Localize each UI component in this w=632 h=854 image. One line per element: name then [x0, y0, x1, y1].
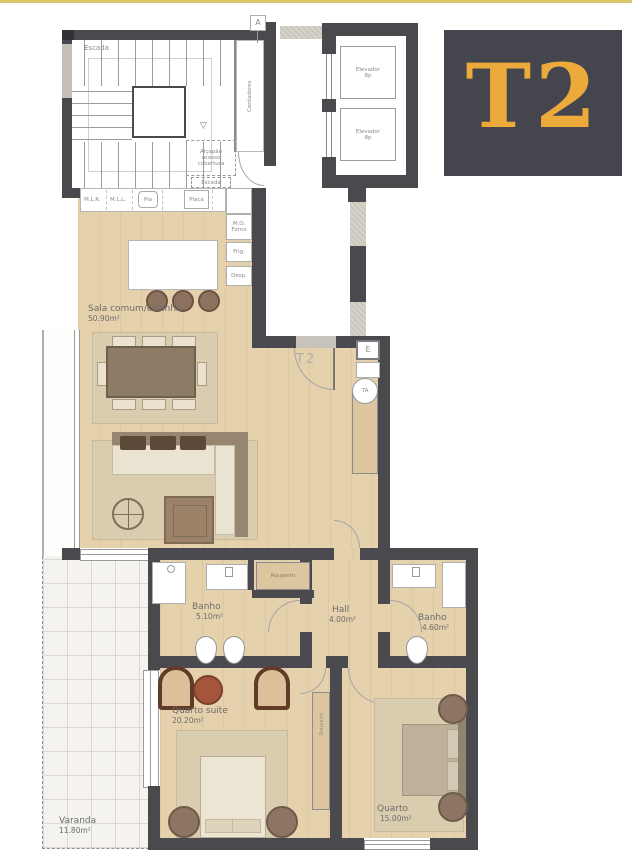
wall: [322, 175, 418, 188]
nightstand: [266, 806, 298, 838]
wall: [350, 246, 366, 302]
top-accent-line: [0, 0, 632, 3]
sofa-cushion: [120, 436, 146, 450]
nightstand: [438, 792, 468, 822]
elevator-car-2: Elevador 8p: [340, 108, 396, 161]
unit-type-badge: T2: [444, 30, 622, 176]
hall-wardrobe-label: Roupeiro: [271, 573, 295, 579]
window-line: [81, 554, 149, 555]
electrical-panel-label: E: [365, 346, 370, 354]
facade-segment-light: [350, 302, 366, 338]
wall: [322, 157, 336, 175]
oven-box: M.O. Forno: [226, 214, 252, 240]
bedroom-label: Quarto: [377, 804, 408, 814]
elevator-door-2: [322, 112, 336, 157]
wall: [430, 838, 478, 850]
wall-column: [62, 30, 74, 40]
sofa-chaise: [215, 445, 235, 535]
pillow: [232, 819, 261, 833]
coffee-table-line: [114, 514, 142, 515]
terrace-label: Varanda: [59, 816, 96, 826]
bedroom-window: [364, 840, 432, 850]
drain: [167, 565, 175, 573]
wall: [252, 336, 296, 348]
wall: [264, 22, 276, 166]
washer-label: M.L.R.: [84, 197, 101, 203]
stair-landing: [132, 86, 186, 138]
nightstand: [168, 806, 200, 838]
pantry-box: Desp.: [226, 266, 252, 286]
wall: [252, 188, 266, 336]
pillow: [205, 819, 234, 833]
bath1-sink: [206, 564, 248, 590]
counter-divider: [132, 190, 134, 210]
wall: [248, 560, 254, 590]
entry-door-leaf: [333, 348, 335, 390]
sofa-back-side: [235, 445, 248, 537]
bath1-area: 5.10m²: [196, 613, 223, 621]
suite-label: Quarto suite: [172, 706, 228, 716]
meters-closet-label: Contadores: [237, 41, 263, 151]
counter-divider: [106, 190, 108, 210]
roof-hatch-sub-box: Escada: [191, 177, 231, 188]
wall: [322, 36, 336, 54]
elevator-door-1: [322, 54, 336, 99]
elevator-2-capacity: 8p: [364, 135, 371, 141]
elevator-1-label: Elevador 8p: [356, 67, 380, 79]
bath2-label: Banho: [418, 613, 447, 623]
stairwell-label: Escada: [84, 44, 109, 52]
dining-table: [106, 346, 196, 398]
faucet: [412, 567, 420, 577]
wall: [348, 188, 366, 202]
window-line: [365, 844, 431, 845]
section-marker-a: A: [250, 15, 266, 31]
fridge-box: Frig.: [226, 242, 252, 262]
wall: [322, 23, 418, 36]
bed-headboard: [458, 718, 466, 802]
entry-utility-box: [356, 362, 380, 378]
dishwasher-label: M.L.L.: [110, 197, 126, 203]
suite-wardrobe: Roupeiro: [312, 692, 330, 810]
section-marker-a-label: A: [255, 19, 260, 27]
elevator-car-1: Elevador 8p: [340, 46, 396, 99]
wall: [326, 656, 348, 668]
elevator-1-capacity: 8p: [364, 73, 371, 79]
pouf-inner: [173, 505, 207, 537]
sink-box: Pia: [138, 191, 158, 208]
meters-closet: Contadores: [236, 40, 264, 152]
bedroom-bed: [402, 724, 464, 796]
living-room-label: Sala comum/cozinha: [88, 304, 181, 314]
fridge-label: Frig.: [233, 249, 245, 255]
suite-west-window: [143, 670, 159, 788]
bathtub: [152, 562, 186, 604]
roof-hatch-label: Alçapão acesso cobertura: [187, 143, 235, 173]
electrical-panel: E: [356, 340, 380, 360]
dining-chair: [142, 399, 166, 410]
stool: [198, 290, 220, 312]
entry-floor-tag: T2: [296, 356, 316, 364]
balcony-strip: [42, 330, 78, 556]
floorplan-canvas: Escada ▽ Contadores Alçapão acesso cober…: [0, 0, 632, 854]
dining-chair: [172, 399, 196, 410]
kitchen-island: [128, 240, 218, 290]
bath1-label: Banho: [192, 602, 221, 612]
living-west-window: [74, 330, 80, 548]
terrace-floor: [42, 556, 149, 849]
wall: [378, 548, 390, 604]
suite-armchair: [158, 666, 194, 710]
counter-divider: [212, 190, 214, 210]
wall: [330, 668, 342, 838]
window-line: [150, 671, 151, 787]
stair-direction-arrow: ▽: [200, 122, 207, 130]
stair-treads-side: [72, 90, 132, 140]
hob-label: Placa: [189, 197, 204, 203]
living-room-area: 50.90m²: [88, 315, 120, 323]
hall-label: Hall: [332, 605, 349, 615]
suite-armchair: [254, 666, 290, 710]
wall-light-segment: [62, 44, 72, 98]
suite-area: 20.20m²: [172, 717, 204, 725]
faucet: [225, 567, 233, 577]
section-cut-line: [257, 31, 258, 43]
unit-type-badge-text: T2: [466, 44, 601, 148]
elevator-2-label: Elevador 8p: [356, 129, 380, 141]
wall: [252, 590, 314, 598]
kitchen-cell: [226, 188, 252, 214]
wall: [322, 99, 336, 112]
hall-wardrobe: Roupeiro: [256, 562, 310, 590]
pantry-label: Desp.: [231, 273, 247, 279]
terrace-area: 11.80m²: [59, 827, 91, 835]
suite-wardrobe-label: Roupeiro: [318, 713, 326, 735]
suite-round-table: [193, 675, 223, 705]
bath2-sink: [392, 564, 436, 588]
suite-bed: [200, 756, 266, 838]
ta-marker-label: TA: [362, 388, 369, 394]
dining-chair: [112, 399, 136, 410]
wall: [384, 656, 478, 668]
door-arc-closet: [238, 152, 264, 186]
wall: [300, 632, 312, 668]
wall: [378, 632, 390, 668]
hall-area: 4.00m²: [329, 616, 356, 624]
sofa-cushion: [150, 436, 176, 450]
pouf-table: [164, 496, 214, 544]
hob-box: Placa: [184, 190, 209, 209]
roof-hatch-box: Alçapão acesso cobertura: [186, 140, 236, 176]
roof-hatch-line3: cobertura: [198, 161, 225, 167]
nightstand: [438, 694, 468, 724]
wall: [62, 30, 266, 40]
roof-hatch-sub-label: Escada: [192, 179, 230, 187]
bedroom-area: 15.00m²: [380, 815, 412, 823]
ta-marker: TA: [352, 378, 378, 404]
shower: [442, 562, 466, 608]
wall: [406, 23, 418, 188]
wall: [148, 838, 364, 850]
wall: [62, 548, 80, 560]
dining-chair: [197, 362, 207, 386]
living-south-window: [80, 549, 150, 561]
bath2-area: 4.60m²: [422, 624, 449, 632]
entry-lintel: [296, 336, 336, 348]
oven-label: M.O. Forno: [227, 221, 251, 233]
sofa-cushion: [180, 436, 206, 450]
hatched-wall-segment: [280, 26, 322, 39]
facade-segment-light: [350, 202, 366, 246]
hall-passage-floor: [332, 548, 360, 560]
sink-label: Pia: [144, 197, 152, 203]
coffee-table: [112, 498, 144, 530]
counter-divider: [162, 190, 164, 210]
